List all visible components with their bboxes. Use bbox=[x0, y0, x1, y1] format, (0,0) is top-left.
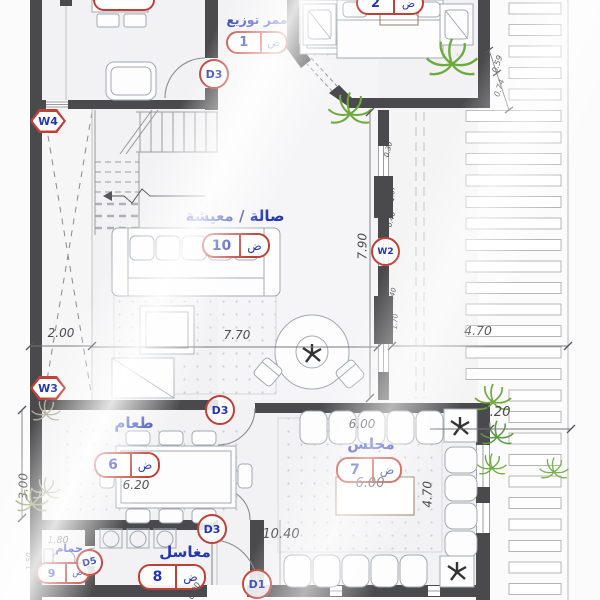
room-label-corridor: ممر توزيع bbox=[220, 13, 294, 26]
room-label-majlis: مجلس bbox=[342, 437, 400, 453]
dim-majlis-height: 4.70 bbox=[422, 472, 435, 516]
door-tag-d3-corridor: D3 bbox=[199, 59, 229, 89]
room-number: 1 bbox=[228, 33, 260, 52]
room-number: 8 bbox=[140, 566, 175, 588]
door-tag-d1-entrance: D1 bbox=[242, 569, 272, 599]
dim-wall-170: 1.70 bbox=[392, 310, 400, 334]
room-badge-bedroom: 2ض bbox=[356, 0, 424, 15]
window-label: W3 bbox=[33, 379, 64, 398]
room-suffix: ض bbox=[130, 454, 158, 476]
room-label-dining: طعام bbox=[100, 416, 168, 432]
room-suffix: ض bbox=[239, 235, 268, 256]
dim-wall-167: 1.67 bbox=[389, 182, 397, 206]
dim-majlis-width-top: 6.00 bbox=[338, 418, 386, 431]
room-number: 2 bbox=[358, 0, 393, 13]
dim-bath-height: 1.50 bbox=[26, 547, 34, 575]
room-suffix: ض bbox=[260, 33, 286, 52]
room-badge-corridor: 1ض bbox=[226, 31, 288, 54]
dim-yard-width: 4.70 bbox=[452, 324, 504, 337]
dim-living-height: 7.90 bbox=[357, 224, 370, 268]
room-suffix: ض bbox=[393, 0, 422, 13]
room-number: 6 bbox=[96, 454, 130, 476]
dim-dining-height: 3.00 bbox=[18, 464, 31, 508]
dim-bath-bottom: 2.80 bbox=[59, 586, 85, 593]
door-tag-d3-dining: D3 bbox=[205, 395, 235, 425]
dim-dining-width: 6.20 bbox=[112, 479, 160, 492]
floor-plan: ممر توزيع صالة / معيشة طعام مجلس مغاسل ح… bbox=[0, 0, 600, 600]
room-badge-top-left-clipped bbox=[93, 0, 155, 11]
room-label-sinks: مغاسل bbox=[147, 545, 223, 561]
room-number: 9 bbox=[38, 564, 65, 582]
room-number: 10 bbox=[204, 235, 239, 256]
door-tag-d3-passage: D3 bbox=[197, 514, 227, 544]
room-label-living: صالة / معيشة bbox=[183, 209, 287, 225]
room-badge-dining: 6ض bbox=[94, 452, 160, 478]
dim-side-setback: 2.20 bbox=[468, 406, 524, 420]
dim-bottom-width: 10.40 bbox=[254, 528, 308, 542]
dim-driveway-width: 2.00 bbox=[38, 327, 84, 340]
dim-bath-width: 1.80 bbox=[41, 536, 75, 546]
window-label: W4 bbox=[33, 112, 64, 131]
window-tag-w2: W2 bbox=[371, 237, 400, 266]
plan-drawing bbox=[0, 0, 600, 600]
dim-living-width: 7.70 bbox=[212, 329, 262, 342]
room-badge-living: 10ض bbox=[202, 233, 270, 258]
dim-majlis-width: 6.00 bbox=[344, 477, 396, 491]
